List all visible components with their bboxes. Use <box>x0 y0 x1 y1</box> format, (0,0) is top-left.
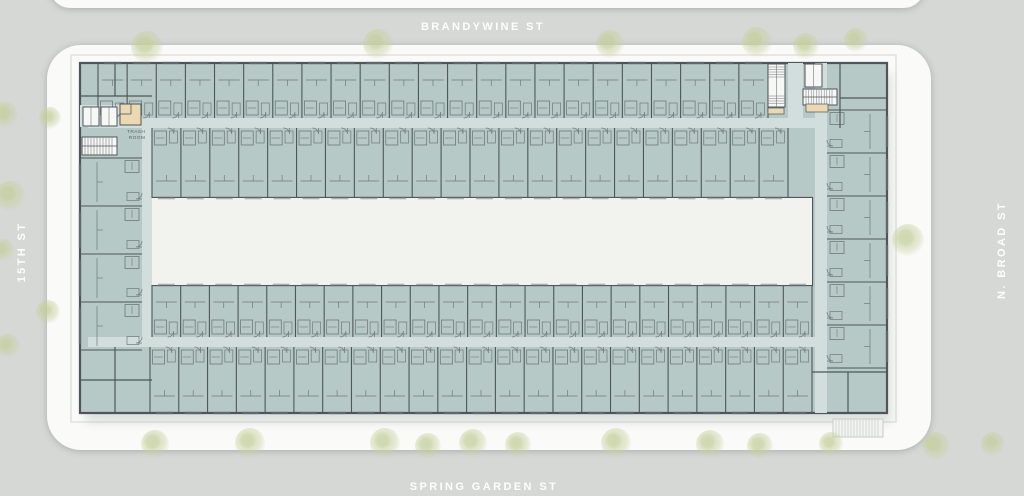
site-plan-scene: TRASH ROOM BRANDYWINE ST SPRING GARDEN S… <box>0 0 1024 496</box>
building-footprint <box>80 63 887 413</box>
trash-room <box>120 104 141 125</box>
street-label-15th: 15TH ST <box>16 192 28 312</box>
street-label-spring-garden: SPRING GARDEN ST <box>374 481 594 493</box>
loading-ramp <box>833 419 883 437</box>
street-label-brandywine: BRANDYWINE ST <box>383 21 583 33</box>
stair <box>768 64 785 107</box>
courtyard <box>152 198 812 285</box>
floor-plan-drawing: TRASH ROOM <box>0 0 1024 496</box>
stair <box>82 137 117 155</box>
building <box>71 55 896 437</box>
stair <box>803 89 837 105</box>
street-label-broad: N. BROAD ST <box>996 190 1008 310</box>
